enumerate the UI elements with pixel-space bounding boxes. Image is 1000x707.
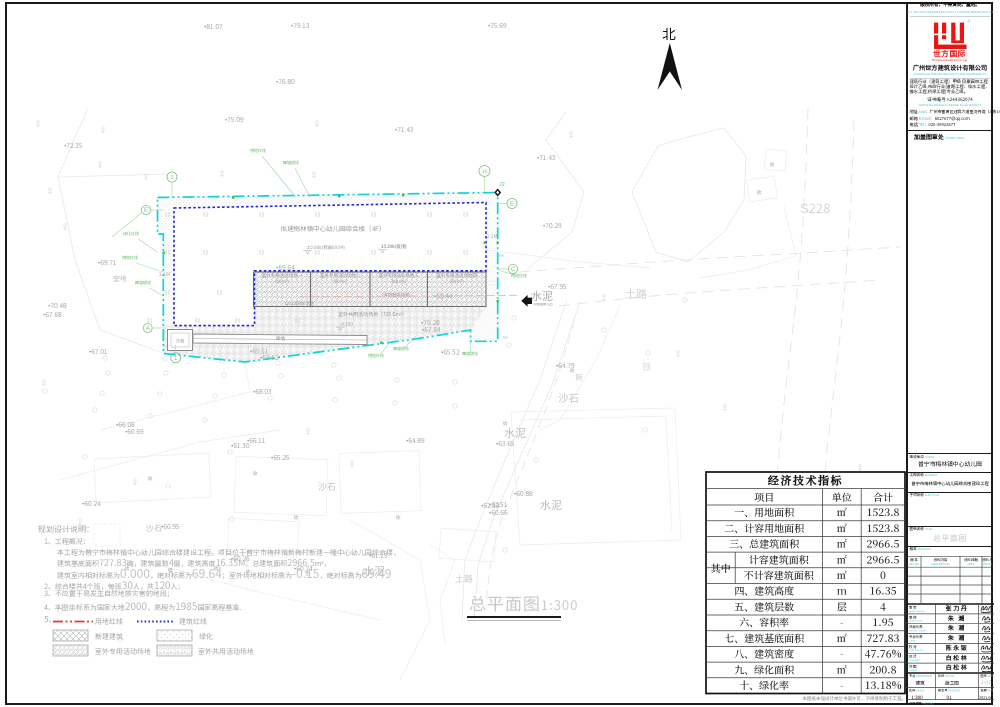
- svg-text:施工图: 施工图: [944, 680, 959, 686]
- svg-text:不计容建筑面积: 不计容建筑面积: [743, 567, 814, 582]
- svg-text:DESCRIPTION: DESCRIPTION: [932, 562, 950, 566]
- svg-text:㎡: ㎡: [837, 551, 847, 566]
- svg-text:绘 图: 绘 图: [909, 663, 917, 668]
- svg-text:727.83: 727.83: [867, 630, 900, 645]
- svg-text:六、容积率: 六、容积率: [739, 614, 789, 629]
- svg-text:项目负责: 项目负责: [908, 624, 923, 629]
- svg-text:专业 PROFESSION: 专业 PROFESSION: [909, 673, 932, 678]
- svg-text:四、建筑高度: 四、建筑高度: [734, 582, 794, 597]
- svg-text:㎡: ㎡: [837, 629, 847, 644]
- svg-text:-: -: [840, 677, 844, 692]
- svg-text:㎡: ㎡: [837, 504, 847, 519]
- svg-text:校 对: 校 对: [908, 643, 917, 648]
- svg-text:五、建筑层数: 五、建筑层数: [733, 598, 794, 613]
- svg-text:DESIGNED: DESIGNED: [909, 660, 921, 662]
- svg-text:朱 潮: 朱 潮: [948, 623, 966, 632]
- svg-text:㎡: ㎡: [837, 661, 847, 676]
- svg-text:日期 DATE: 日期 DATE: [981, 687, 995, 692]
- svg-text:单位: 单位: [832, 489, 852, 504]
- svg-text:REV.BY: REV.BY: [983, 562, 993, 566]
- svg-text:㎡: ㎡: [837, 519, 847, 534]
- svg-text:®: ®: [968, 19, 971, 24]
- svg-text:九、绿化面积: 九、绿化面积: [734, 661, 794, 676]
- svg-text:㎡: ㎡: [837, 567, 847, 582]
- svg-text:白松林: 白松林: [946, 652, 969, 661]
- svg-text:八、建筑密度: 八、建筑密度: [734, 645, 794, 660]
- svg-text:-: -: [840, 614, 844, 629]
- svg-text:DRAWN: DRAWN: [909, 668, 918, 671]
- svg-text:阶段 STATUS: 阶段 STATUS: [938, 673, 955, 678]
- svg-text:2966.5: 2966.5: [867, 536, 900, 551]
- svg-text:审 核: 审 核: [909, 614, 917, 619]
- svg-text:设 计: 设 计: [908, 653, 917, 658]
- svg-text:图号 DWG.NO: 图号 DWG.NO: [981, 673, 995, 678]
- svg-text:建筑: 建筑: [914, 679, 925, 686]
- svg-text:DATE: DATE: [968, 562, 975, 566]
- svg-text:PROJECT-CHIEF: PROJECT-CHIEF: [909, 630, 927, 632]
- svg-text:张力丹: 张力丹: [946, 603, 969, 612]
- svg-text:七、建筑基底面积: 七、建筑基底面积: [724, 629, 804, 644]
- svg-text:4: 4: [880, 599, 886, 614]
- svg-text:APPROVED BY: APPROVED BY: [909, 609, 925, 612]
- svg-text:01: 01: [946, 694, 952, 700]
- svg-text:CHECKED BY: CHECKED BY: [909, 650, 924, 652]
- svg-text:朱 潮: 朱 潮: [948, 633, 966, 642]
- svg-text:合计: 合计: [873, 489, 893, 504]
- svg-text:经济技术指标: 经济技术指标: [768, 472, 843, 488]
- svg-text:200.8: 200.8: [869, 662, 896, 677]
- svg-text:版本号 REVISION: 版本号 REVISION: [937, 687, 960, 692]
- svg-text:项目: 项目: [754, 489, 774, 504]
- svg-text:比例 SCALE: 比例 SCALE: [909, 687, 924, 692]
- svg-text:16.35: 16.35: [869, 583, 896, 598]
- svg-text:0: 0: [880, 568, 886, 583]
- svg-text:十、绿化率: 十、绿化率: [739, 677, 789, 692]
- svg-text:J-07: J-07: [981, 678, 992, 686]
- svg-text:其中: 其中: [711, 560, 731, 575]
- svg-text:1523.8: 1523.8: [867, 505, 900, 520]
- svg-text:REV.NO: REV.NO: [909, 562, 919, 566]
- svg-text:二、计容用地面积: 二、计容用地面积: [724, 519, 804, 534]
- svg-text:13.18%: 13.18%: [865, 678, 902, 693]
- svg-text:2966.5: 2966.5: [867, 552, 900, 567]
- svg-text:专业负责: 专业负责: [909, 634, 923, 639]
- svg-text:一、用地面积: 一、用地面积: [734, 504, 794, 519]
- svg-text:-: -: [840, 645, 844, 660]
- svg-text:47.76%: 47.76%: [865, 646, 902, 661]
- svg-text:Shi Fang International Co., Lt: Shi Fang International Co., Ltd: [932, 58, 968, 62]
- svg-text:㎡: ㎡: [837, 535, 847, 550]
- svg-text:层: 层: [837, 598, 847, 613]
- svg-text:陈永钣: 陈永钣: [946, 642, 969, 651]
- svg-text:白松林: 白松林: [946, 662, 969, 671]
- svg-text:计容建筑面积: 计容建筑面积: [749, 551, 809, 566]
- svg-text:工程编号 PROJ. NO.: 工程编号 PROJ. NO.: [909, 700, 935, 705]
- svg-text:AUDITED BY: AUDITED BY: [909, 619, 923, 622]
- svg-text:CHIEF: CHIEF: [909, 640, 916, 642]
- svg-text:审 定: 审 定: [909, 604, 917, 609]
- svg-text:1523.8: 1523.8: [867, 520, 900, 535]
- svg-text:2021.06: 2021.06: [979, 695, 993, 700]
- svg-text:1.95: 1.95: [872, 615, 893, 630]
- svg-text:朱 潮: 朱 潮: [948, 613, 966, 622]
- svg-text:m: m: [837, 582, 847, 597]
- svg-text:三、总建筑面积: 三、总建筑面积: [729, 535, 799, 550]
